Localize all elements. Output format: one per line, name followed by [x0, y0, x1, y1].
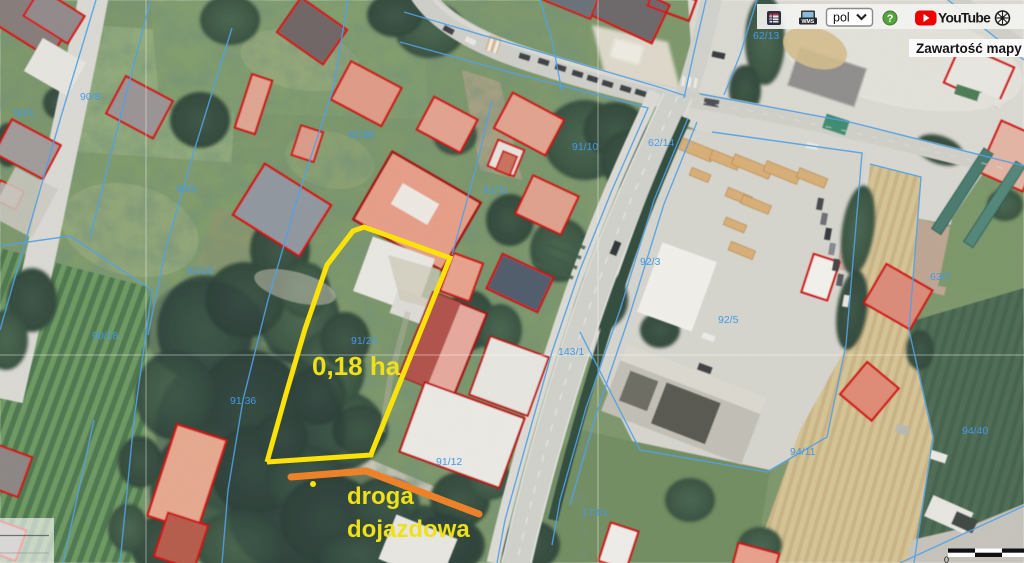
- svg-text:WMS: WMS: [802, 19, 815, 25]
- svg-text:?: ?: [887, 13, 894, 25]
- svg-text:pol: pol: [833, 11, 850, 25]
- svg-text:0: 0: [944, 555, 949, 563]
- svg-text:YouTube: YouTube: [938, 11, 991, 26]
- svg-text:Zawartość mapy: Zawartość mapy: [916, 41, 1022, 56]
